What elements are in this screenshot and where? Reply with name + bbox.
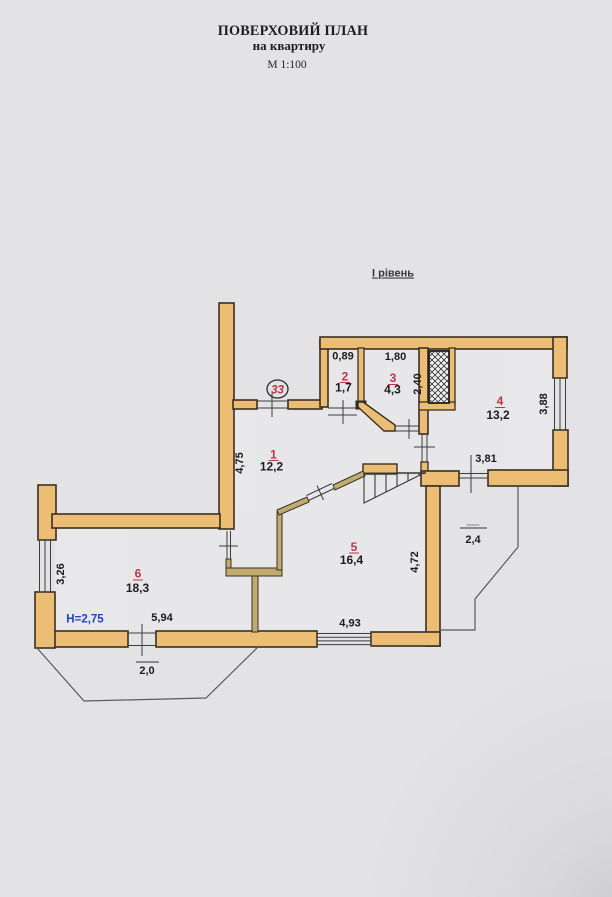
svg-text:3,81: 3,81 — [475, 453, 496, 465]
svg-text:1,7: 1,7 — [335, 381, 352, 395]
svg-text:5,94: 5,94 — [151, 612, 173, 624]
svg-text:2,0: 2,0 — [139, 665, 154, 677]
svg-text:І рівень: І рівень — [372, 268, 414, 280]
svg-text:2,4: 2,4 — [465, 534, 481, 546]
svg-text:12,2: 12,2 — [260, 460, 284, 474]
svg-text:3,88: 3,88 — [538, 393, 550, 414]
svg-text:на квартиру: на квартиру — [253, 38, 326, 53]
svg-text:Н=2,75: Н=2,75 — [66, 614, 104, 626]
svg-text:4,3: 4,3 — [384, 383, 401, 397]
svg-text:ПОВЕРХОВИЙ ПЛАН: ПОВЕРХОВИЙ ПЛАН — [218, 22, 368, 39]
svg-text:М 1:100: М 1:100 — [267, 59, 307, 71]
svg-text:18,3: 18,3 — [126, 581, 150, 595]
svg-text:балкон: балкон — [467, 522, 480, 527]
svg-text:4: 4 — [497, 394, 504, 408]
svg-text:0,89: 0,89 — [332, 351, 353, 363]
svg-text:16,4: 16,4 — [340, 553, 364, 567]
svg-text:5: 5 — [351, 540, 358, 554]
svg-text:2,40: 2,40 — [412, 373, 424, 394]
svg-text:13,2: 13,2 — [486, 408, 510, 422]
svg-text:4,93: 4,93 — [339, 618, 360, 630]
svg-text:33: 33 — [271, 385, 284, 397]
svg-text:1,80: 1,80 — [385, 351, 406, 363]
svg-text:6: 6 — [135, 567, 142, 581]
svg-text:4,75: 4,75 — [234, 452, 246, 473]
svg-text:3,26: 3,26 — [55, 563, 67, 584]
svg-text:4,72: 4,72 — [409, 551, 421, 572]
